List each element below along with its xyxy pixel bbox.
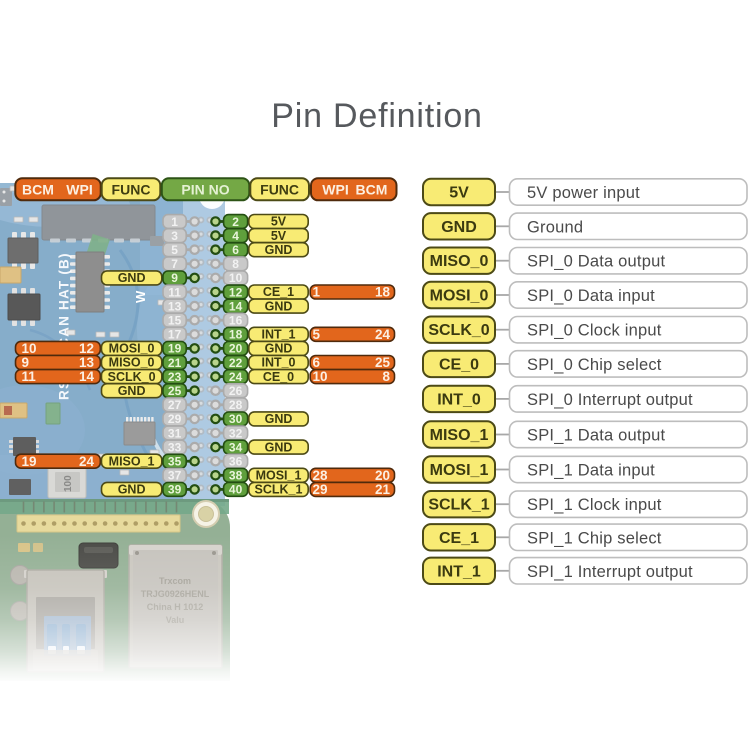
svg-text:GND: GND xyxy=(118,271,146,285)
svg-text:29: 29 xyxy=(313,482,328,497)
svg-text:GND: GND xyxy=(118,483,146,497)
svg-text:Pin Definition: Pin Definition xyxy=(271,97,483,135)
svg-text:SCLK_1: SCLK_1 xyxy=(428,497,489,514)
svg-text:5: 5 xyxy=(313,327,321,342)
svg-text:19: 19 xyxy=(22,454,37,469)
svg-text:35: 35 xyxy=(168,455,182,469)
svg-text:MOSI_1: MOSI_1 xyxy=(256,469,302,483)
svg-text:32: 32 xyxy=(229,426,243,440)
svg-text:4: 4 xyxy=(232,229,239,243)
svg-text:13: 13 xyxy=(168,299,182,313)
svg-text:39: 39 xyxy=(168,483,182,497)
svg-text:1: 1 xyxy=(313,285,321,300)
svg-text:37: 37 xyxy=(168,469,182,483)
svg-text:GND: GND xyxy=(441,219,477,236)
svg-text:100: 100 xyxy=(63,475,74,492)
svg-text:22: 22 xyxy=(229,356,243,370)
svg-text:SPI_1 Interrupt output: SPI_1 Interrupt output xyxy=(527,563,693,581)
svg-text:12: 12 xyxy=(79,341,94,356)
svg-text:6: 6 xyxy=(313,355,321,370)
svg-text:MOSI_0: MOSI_0 xyxy=(430,288,489,305)
svg-text:21: 21 xyxy=(375,482,391,497)
svg-text:27: 27 xyxy=(168,398,182,412)
svg-text:28: 28 xyxy=(229,398,243,412)
svg-text:5V: 5V xyxy=(271,215,287,229)
svg-text:14: 14 xyxy=(79,369,95,384)
svg-text:MISO_0: MISO_0 xyxy=(109,356,155,370)
svg-text:GND: GND xyxy=(265,412,293,426)
svg-text:FUNC: FUNC xyxy=(112,182,151,198)
svg-text:8: 8 xyxy=(382,369,390,384)
svg-text:CE_1: CE_1 xyxy=(263,285,294,299)
svg-text:24: 24 xyxy=(79,454,95,469)
svg-text:SCLK_0: SCLK_0 xyxy=(108,370,156,384)
svg-text:Ground: Ground xyxy=(527,218,583,236)
svg-text:18: 18 xyxy=(229,328,243,342)
svg-text:34: 34 xyxy=(229,440,243,454)
svg-text:13: 13 xyxy=(79,355,95,370)
svg-text:1: 1 xyxy=(171,215,178,229)
svg-text:SPI_0 Interrupt output: SPI_0 Interrupt output xyxy=(527,391,693,409)
svg-text:SPI_0 Data input: SPI_0 Data input xyxy=(527,287,655,305)
svg-text:BCM: BCM xyxy=(356,182,388,198)
svg-text:FUNC: FUNC xyxy=(260,182,299,198)
svg-text:CE_1: CE_1 xyxy=(439,530,479,547)
svg-text:21: 21 xyxy=(168,356,182,370)
svg-text:20: 20 xyxy=(375,468,390,483)
svg-text:24: 24 xyxy=(229,370,243,384)
svg-text:BCM: BCM xyxy=(22,182,54,198)
svg-text:GND: GND xyxy=(265,342,293,356)
svg-text:MISO_0: MISO_0 xyxy=(430,253,489,270)
svg-text:11: 11 xyxy=(22,369,37,384)
svg-text:40: 40 xyxy=(229,483,243,497)
svg-text:SPI_1 Data output: SPI_1 Data output xyxy=(527,427,665,445)
svg-text:9: 9 xyxy=(22,355,30,370)
svg-text:GND: GND xyxy=(265,299,293,313)
svg-text:10: 10 xyxy=(22,341,37,356)
svg-text:38: 38 xyxy=(229,469,243,483)
svg-text:9: 9 xyxy=(171,271,178,285)
svg-text:11: 11 xyxy=(168,285,181,299)
svg-text:3: 3 xyxy=(171,229,178,243)
svg-text:5V: 5V xyxy=(449,185,469,202)
svg-text:SPI_0 Clock input: SPI_0 Clock input xyxy=(527,322,662,340)
svg-text:5V: 5V xyxy=(271,229,287,243)
svg-text:INT_0: INT_0 xyxy=(261,356,295,370)
svg-text:28: 28 xyxy=(313,468,329,483)
svg-text:MOSI_0: MOSI_0 xyxy=(109,342,155,356)
svg-text:12: 12 xyxy=(229,285,243,299)
svg-text:18: 18 xyxy=(375,285,391,300)
svg-text:31: 31 xyxy=(168,426,182,440)
svg-text:10: 10 xyxy=(313,369,328,384)
svg-text:15: 15 xyxy=(168,314,182,328)
svg-text:33: 33 xyxy=(168,440,182,454)
svg-text:SCLK_1: SCLK_1 xyxy=(255,483,303,497)
svg-text:36: 36 xyxy=(229,455,243,469)
svg-text:7: 7 xyxy=(171,257,178,271)
svg-text:20: 20 xyxy=(229,342,243,356)
svg-text:5V power input: 5V power input xyxy=(527,184,640,202)
svg-text:29: 29 xyxy=(168,412,182,426)
svg-text:SPI_1 Data input: SPI_1 Data input xyxy=(527,462,655,480)
svg-text:25: 25 xyxy=(168,384,182,398)
svg-text:30: 30 xyxy=(229,412,243,426)
svg-text:CE_0: CE_0 xyxy=(263,370,294,384)
svg-text:26: 26 xyxy=(229,384,243,398)
svg-text:GND: GND xyxy=(265,440,293,454)
svg-text:CE_0: CE_0 xyxy=(439,356,479,373)
svg-text:SPI_0 Data output: SPI_0 Data output xyxy=(527,253,665,271)
svg-text:19: 19 xyxy=(168,342,182,356)
svg-text:MISO_1: MISO_1 xyxy=(109,454,155,468)
svg-text:INT_1: INT_1 xyxy=(261,328,295,342)
svg-text:5: 5 xyxy=(171,243,178,257)
svg-text:GND: GND xyxy=(265,243,293,257)
svg-text:2: 2 xyxy=(232,215,239,229)
svg-text:GND: GND xyxy=(118,384,146,398)
svg-text:INT_1: INT_1 xyxy=(437,563,481,580)
svg-text:25: 25 xyxy=(375,355,391,370)
svg-text:INT_0: INT_0 xyxy=(437,391,481,408)
svg-text:MOSI_1: MOSI_1 xyxy=(430,462,489,479)
svg-text:WPI: WPI xyxy=(66,182,92,198)
svg-text:24: 24 xyxy=(375,327,391,342)
svg-text:23: 23 xyxy=(168,370,182,384)
svg-text:10: 10 xyxy=(229,271,243,285)
svg-text:SCLK_0: SCLK_0 xyxy=(428,322,489,339)
svg-text:16: 16 xyxy=(229,314,243,328)
svg-text:SPI_1 Clock input: SPI_1 Clock input xyxy=(527,496,662,514)
svg-text:SPI_0 Chip select: SPI_0 Chip select xyxy=(527,356,662,374)
svg-text:6: 6 xyxy=(232,243,239,257)
svg-text:MISO_1: MISO_1 xyxy=(430,427,489,444)
svg-text:14: 14 xyxy=(229,299,243,313)
svg-text:WPI: WPI xyxy=(322,182,348,198)
svg-text:8: 8 xyxy=(232,257,239,271)
svg-text:SPI_1 Chip select: SPI_1 Chip select xyxy=(527,529,662,547)
svg-text:W: W xyxy=(133,290,148,303)
svg-text:PIN NO: PIN NO xyxy=(181,182,229,198)
svg-text:17: 17 xyxy=(168,328,182,342)
